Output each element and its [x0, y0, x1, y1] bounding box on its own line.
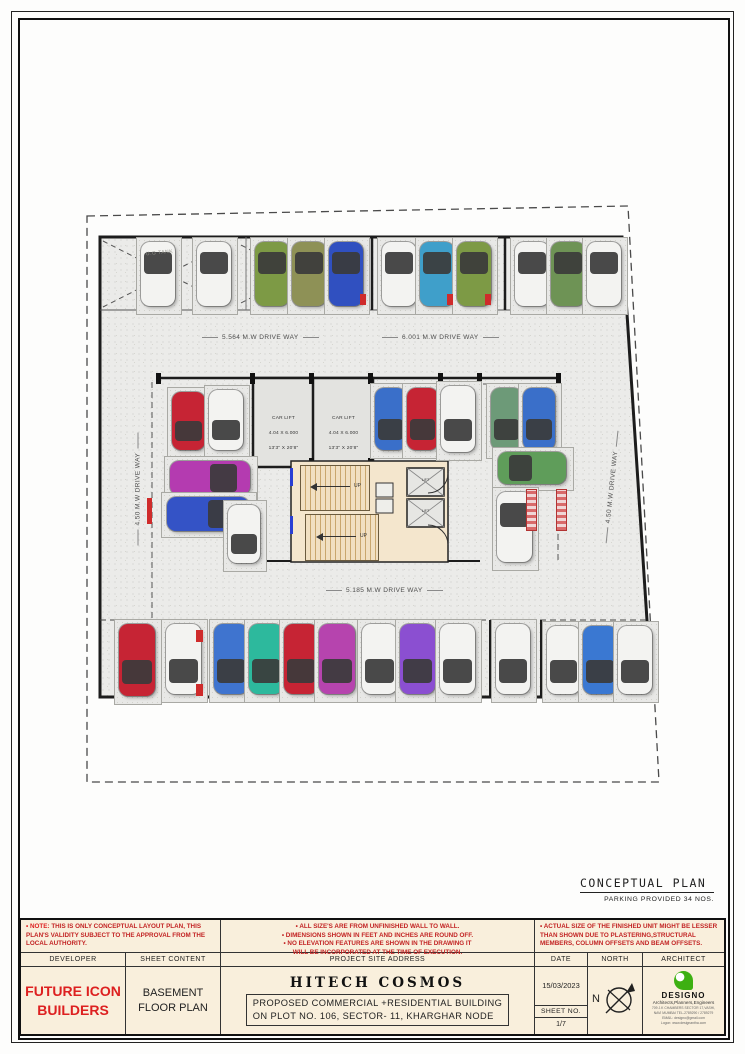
header-sheet-content: SHEET CONTENT — [126, 953, 221, 967]
architect-address-line: Logon: www.designantha.com — [652, 1021, 715, 1026]
sheet-content-line2: FLOOR PLAN — [126, 1001, 220, 1016]
stair-up-arrow — [318, 536, 356, 537]
header-project-address: PROJECT SITE ADDRESS — [221, 953, 535, 967]
date-cell: 15/03/2023 SHEET NO. 1/7 — [535, 967, 588, 1034]
sheet-no-value: 1/7 — [535, 1018, 587, 1028]
note-mid-line: • DIMENSIONS SHOWN IN FEET AND INCHES AR… — [226, 932, 529, 941]
car-lift-line2: 4.04 X 6.000 — [255, 430, 312, 437]
car-lift-line1: CAR LIFT — [315, 415, 372, 422]
project-cell: HITECH COSMOS PROPOSED COMMERCIAL +RESID… — [221, 967, 535, 1034]
architect-address: 709 J.K CHAMBERS SECTOR 17,VASHI, NAVI M… — [652, 1006, 715, 1026]
architect-cell: DESIGNO Architects,Planners,Engineers 70… — [643, 967, 724, 1034]
note-left-text: THIS IS ONLY CONCEPTUAL LAYOUT PLAN, THI… — [26, 923, 205, 947]
sheet-content-line1: BASEMENT — [126, 986, 220, 1001]
conceptual-plan-title: CONCEPTUAL PLAN — [580, 876, 714, 893]
car-lift-line3: 13'3" X 20'8" — [255, 445, 312, 452]
north-cell: N — [588, 967, 643, 1034]
driveway-label-bottom: 5.185 M.W DRIVE WAY — [322, 587, 442, 594]
architect-name: DESIGNO — [662, 991, 706, 1000]
developer-name-line1: FUTURE ICON — [21, 982, 125, 1000]
stair-up-label: UP — [360, 533, 367, 539]
ug-tank-label: U.G TANK — [146, 249, 174, 258]
parking-provided-note: PARKING PROVIDED 34 NOS. — [580, 896, 714, 903]
stair-up-arrow — [312, 486, 350, 487]
driveway-label-top-right: 6.001 M.W DRIVE WAY — [378, 334, 498, 341]
header-architect: ARCHITECT — [643, 953, 724, 967]
developer-cell: FUTURE ICON BUILDERS — [21, 967, 126, 1034]
note-mid-line: • NO ELEVATION FEATURES ARE SHOWN IN THE… — [226, 940, 529, 949]
driveway-label-left: 4.50 M.W DRIVE WAY — [135, 430, 142, 550]
sheet-content-cell: BASEMENT FLOOR PLAN — [126, 967, 221, 1034]
caption-block: CONCEPTUAL PLAN PARKING PROVIDED 34 NOS. — [580, 876, 714, 903]
developer-name-line2: BUILDERS — [21, 1001, 125, 1019]
header-north: NORTH — [588, 953, 643, 967]
project-name: HITECH COSMOS — [290, 975, 465, 991]
date-value: 15/03/2023 — [535, 967, 587, 1005]
sheet-no-header: SHEET NO. — [535, 1005, 587, 1018]
drawing-sheet: UP UP 5.564 M.W DRIVE WAY 6.001 M.W DRIV… — [0, 0, 745, 1054]
project-address-line1: PROPOSED COMMERCIAL +RESIDENTIAL BUILDIN… — [253, 997, 502, 1010]
car-lift-line3: 13'3" X 20'8" — [315, 445, 372, 452]
car-lift-line1: CAR LIFT — [255, 415, 312, 422]
header-date: DATE — [535, 953, 588, 967]
note-mid-line: • ALL SIZE'S ARE FROM UNFINISHED WALL TO… — [226, 923, 529, 932]
note-right-cell: • ACTUAL SIZE OF THE FINISHED UNIT MIGHT… — [535, 920, 724, 953]
note-left-cell: • NOTE: THIS IS ONLY CONCEPTUAL LAYOUT P… — [21, 920, 221, 953]
title-block: • NOTE: THIS IS ONLY CONCEPTUAL LAYOUT P… — [19, 918, 726, 1036]
project-address-box: PROPOSED COMMERCIAL +RESIDENTIAL BUILDIN… — [246, 994, 509, 1025]
designo-logo-icon — [674, 971, 693, 990]
architect-subtitle: Architects,Planners,Engineers — [653, 1000, 715, 1005]
stair-up-label: UP — [354, 483, 361, 489]
car-lift-room-label: CAR LIFT 4.04 X 6.000 13'3" X 20'8" — [315, 408, 372, 460]
lift-label: LIFT — [407, 478, 444, 483]
driveway-label-right: 4.50 M.W DRIVE WAY — [602, 427, 622, 547]
project-address-line2: ON PLOT NO. 106, SECTOR- 11, KHARGHAR NO… — [253, 1010, 502, 1023]
driveway-label-top-left: 5.564 M.W DRIVE WAY — [198, 334, 318, 341]
header-developer: DEVELOPER — [21, 953, 126, 967]
car-lift-room-label: CAR LIFT 4.04 X 6.000 13'3" X 20'8" — [255, 408, 312, 460]
note-left-label: • NOTE: — [26, 923, 50, 930]
car-lift-line2: 4.04 X 6.000 — [315, 430, 372, 437]
note-mid-cell: • ALL SIZE'S ARE FROM UNFINISHED WALL TO… — [221, 920, 535, 953]
north-letter: N — [592, 993, 600, 1005]
lift-label: LIFT — [407, 509, 444, 514]
